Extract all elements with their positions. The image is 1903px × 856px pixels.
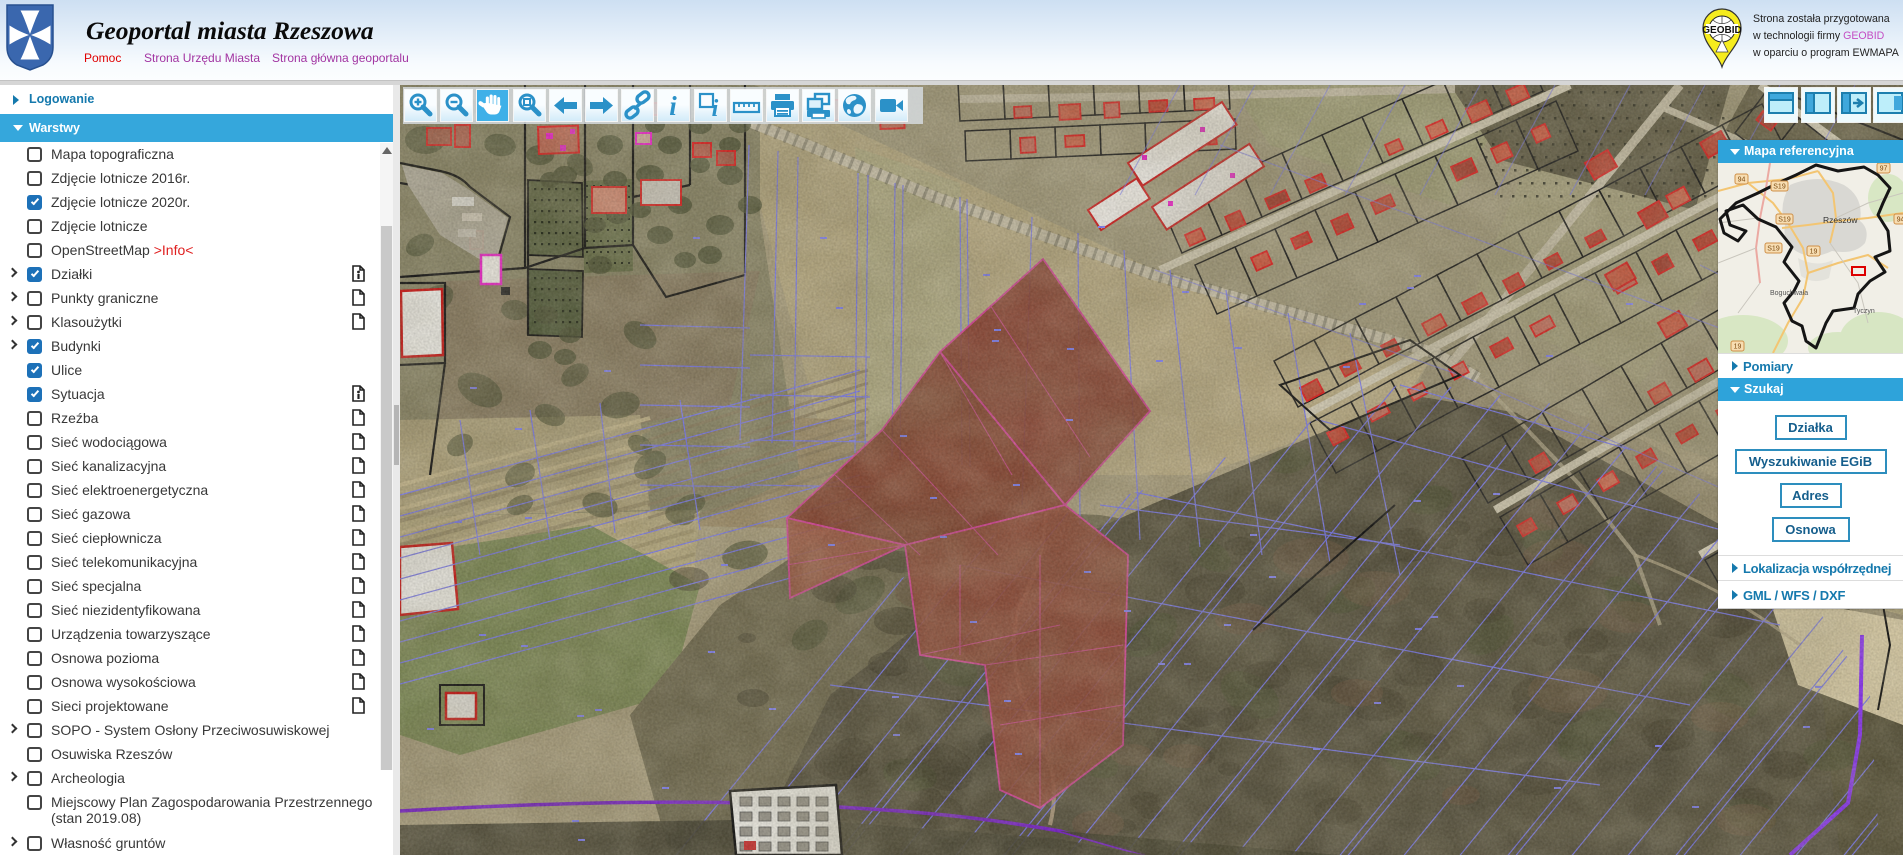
svg-text:94: 94 xyxy=(1738,177,1746,184)
svg-text:i: i xyxy=(711,96,718,121)
svg-text:97: 97 xyxy=(1880,166,1888,173)
svg-text:i: i xyxy=(670,91,678,121)
svg-text:Boguchwała: Boguchwała xyxy=(1770,290,1808,297)
svg-text:S19: S19 xyxy=(1773,184,1786,191)
svg-text:S19: S19 xyxy=(1767,246,1780,253)
svg-text:Tyczyn: Tyczyn xyxy=(1853,308,1875,315)
svg-text:GEOBID: GEOBID xyxy=(1702,25,1741,36)
svg-text:19: 19 xyxy=(1810,249,1818,256)
svg-text:Rzeszów: Rzeszów xyxy=(1823,215,1858,225)
svg-text:94: 94 xyxy=(1897,217,1903,224)
svg-text:S19: S19 xyxy=(1778,217,1791,224)
svg-text:19: 19 xyxy=(1734,344,1742,351)
